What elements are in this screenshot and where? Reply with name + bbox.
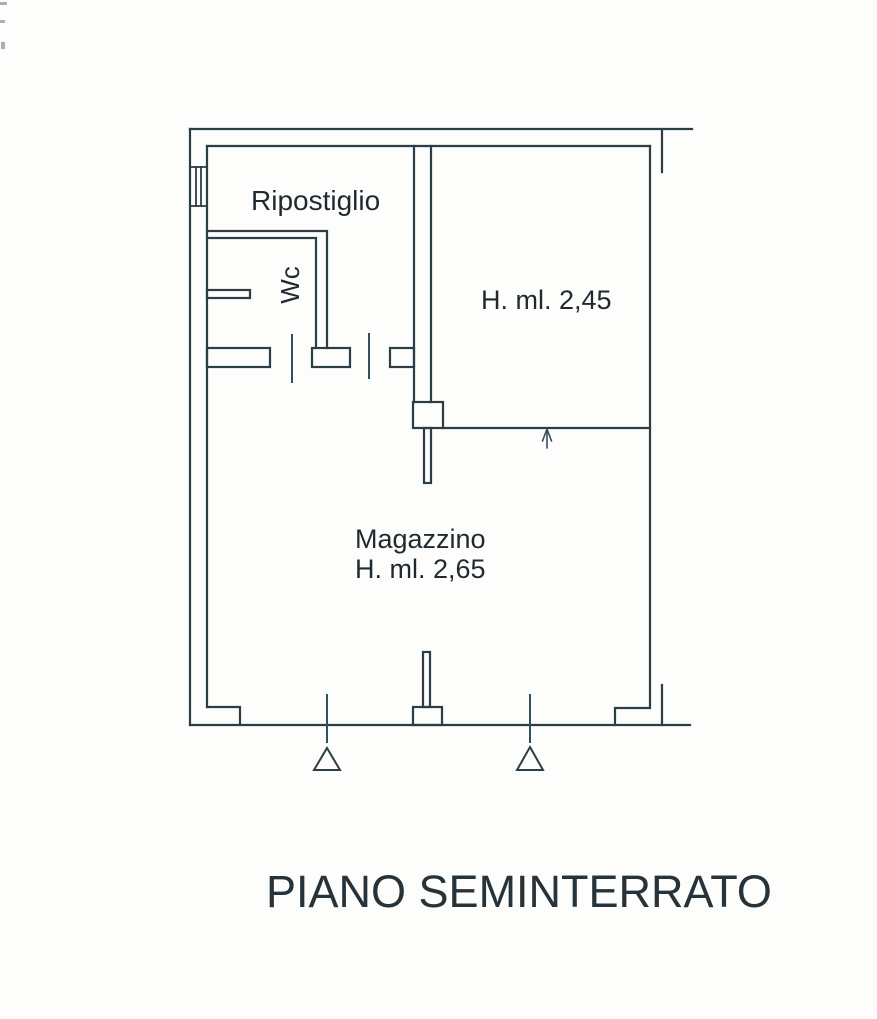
wall-block (207, 348, 270, 367)
window-icon (190, 167, 207, 206)
door-jamb-block (312, 348, 350, 367)
wall-stub (207, 290, 250, 298)
entrance-arrow-icon (543, 429, 552, 448)
thin-wall-stub (423, 652, 430, 707)
room-height-label: H. ml. 2,65 (355, 554, 486, 584)
thin-wall-stub (424, 428, 431, 483)
page-title: PIANO SEMINTERRATO (266, 866, 772, 918)
central-partition (390, 146, 650, 725)
wall-foot-block (413, 707, 442, 725)
floor-plan-page: Ripostiglio Wc H. ml. 2,45 Magazzino H. … (0, 0, 877, 1019)
room-name: Magazzino (355, 524, 486, 554)
inner-wall-faces (207, 146, 650, 725)
room-height-label: H. ml. 2,45 (481, 286, 612, 314)
door-jamb-block (390, 348, 414, 367)
entrance-markers (314, 747, 543, 770)
room-label-wc: Wc (277, 266, 305, 304)
entrance-triangle-icon (517, 747, 543, 770)
room-label-ripostiglio: Ripostiglio (251, 186, 380, 215)
pillar-block (413, 402, 443, 428)
entrance-triangle-icon (314, 748, 340, 770)
room-label-magazzino: Magazzino H. ml. 2,65 (355, 524, 486, 584)
